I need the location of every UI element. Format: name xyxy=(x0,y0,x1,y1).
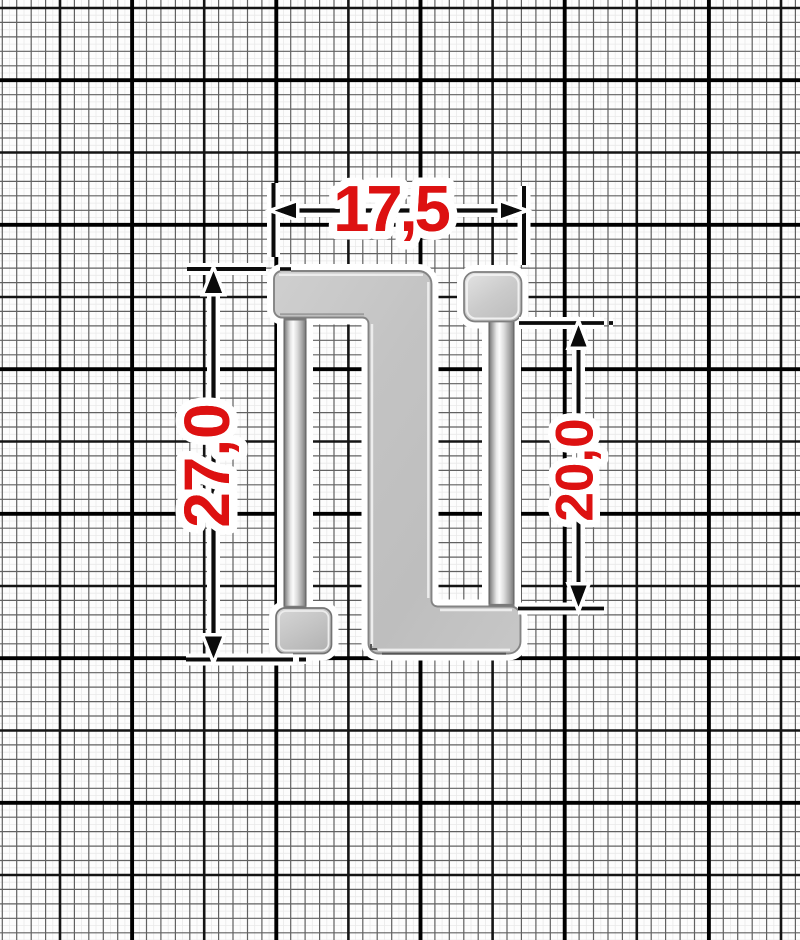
svg-text:20,0: 20,0 xyxy=(546,418,605,521)
svg-text:17,5: 17,5 xyxy=(333,172,449,245)
svg-text:27,0: 27,0 xyxy=(171,403,243,528)
